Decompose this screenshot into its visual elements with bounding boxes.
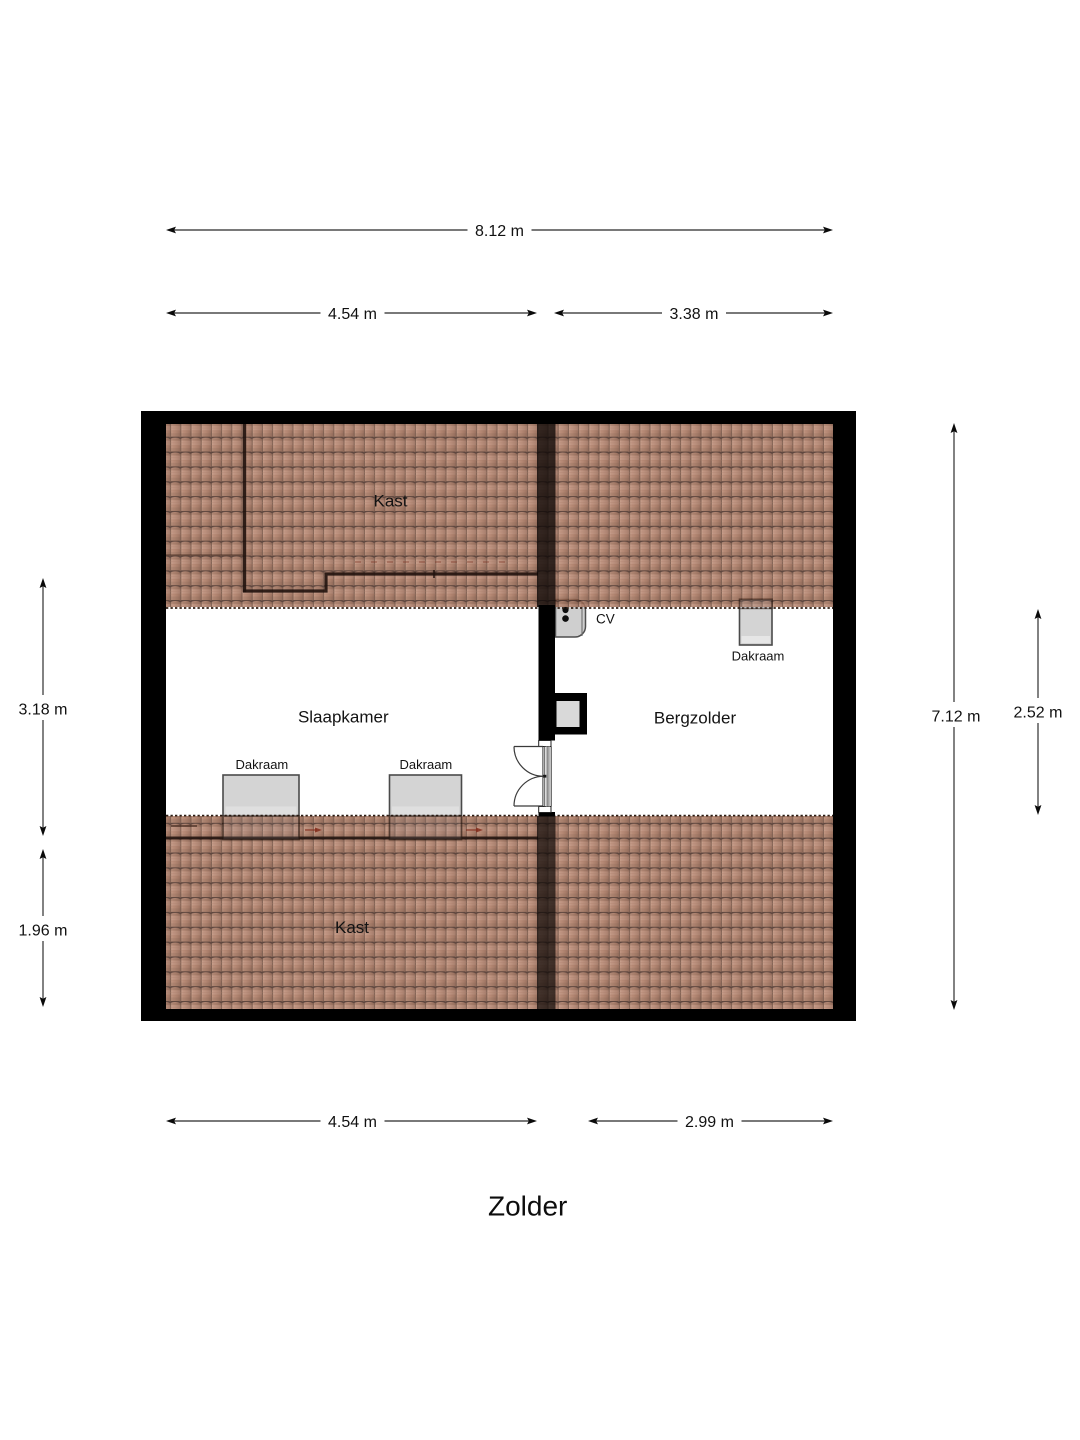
svg-text:1.96 m: 1.96 m bbox=[19, 923, 68, 940]
svg-text:8.12 m: 8.12 m bbox=[475, 223, 524, 240]
svg-text:4.54 m: 4.54 m bbox=[328, 1114, 377, 1131]
svg-text:2.99 m: 2.99 m bbox=[685, 1114, 734, 1131]
svg-text:Kast: Kast bbox=[373, 491, 407, 510]
svg-text:Dakraam: Dakraam bbox=[732, 648, 785, 663]
svg-text:Kast: Kast bbox=[335, 918, 369, 937]
svg-text:3.18 m: 3.18 m bbox=[19, 702, 68, 719]
svg-text:4.54 m: 4.54 m bbox=[328, 306, 377, 323]
svg-text:Zolder: Zolder bbox=[488, 1190, 567, 1221]
svg-text:2.52 m: 2.52 m bbox=[1014, 705, 1063, 722]
svg-text:CV: CV bbox=[596, 612, 615, 627]
svg-text:Dakraam: Dakraam bbox=[400, 757, 453, 772]
svg-text:Dakraam: Dakraam bbox=[236, 757, 289, 772]
svg-text:7.12 m: 7.12 m bbox=[932, 709, 981, 726]
svg-text:3.38 m: 3.38 m bbox=[670, 306, 719, 323]
svg-text:Bergzolder: Bergzolder bbox=[654, 708, 737, 727]
svg-text:Slaapkamer: Slaapkamer bbox=[298, 707, 389, 726]
